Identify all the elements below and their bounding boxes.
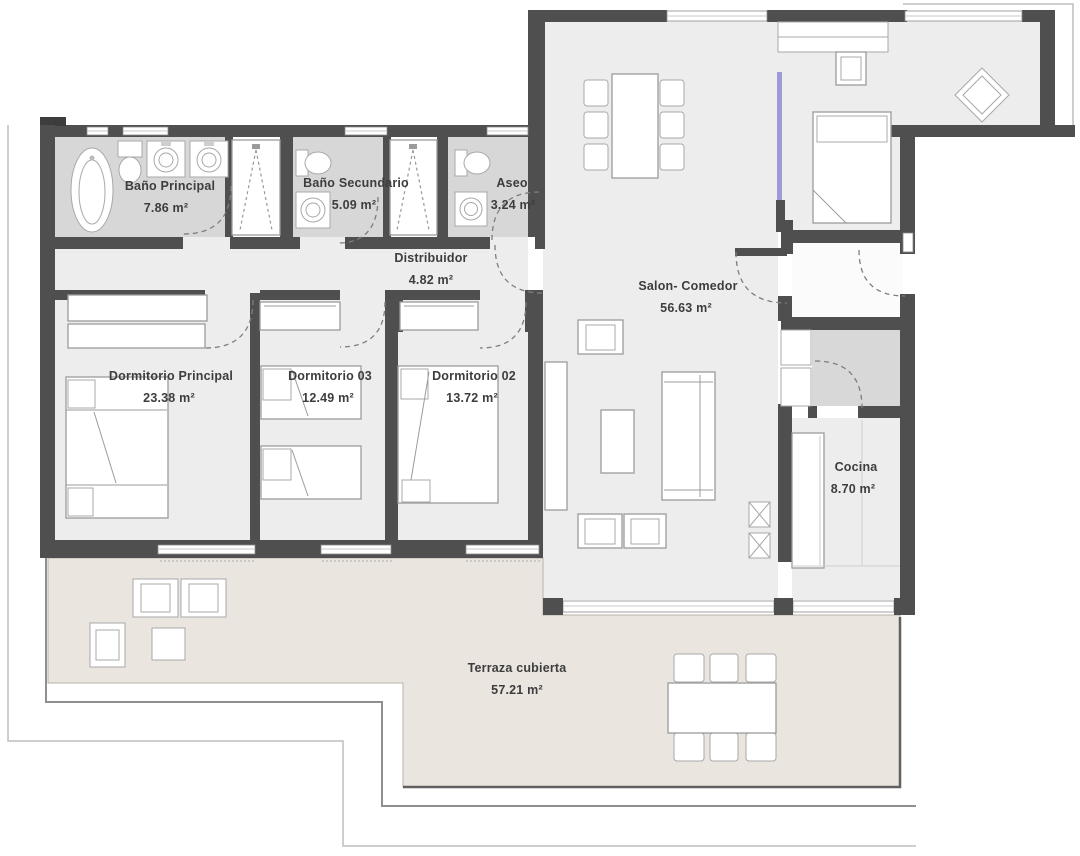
svg-text:3.24 m²: 3.24 m² [491, 198, 535, 212]
stool-2 [749, 533, 770, 558]
sofa [662, 372, 715, 500]
svg-text:Dormitorio 03: Dormitorio 03 [288, 369, 372, 383]
window-adjacent-top [905, 11, 1022, 21]
wall-salon-bottom-corner-mid [774, 598, 793, 615]
dining-chair [660, 144, 684, 170]
double-bed-dorm02 [398, 366, 498, 503]
sink-aseo [455, 192, 487, 226]
terrace-chair [674, 733, 704, 761]
wall-storage-bottom-stub [808, 406, 817, 418]
pillow [263, 449, 291, 480]
svg-text:12.49 m²: 12.49 m² [302, 391, 354, 405]
svg-text:7.86 m²: 7.86 m² [144, 201, 188, 215]
wall-right-adjacent-room [1040, 10, 1055, 131]
wall-top-bathrooms [40, 125, 545, 137]
storage-floor [812, 330, 903, 406]
terrace-side-chair [90, 623, 125, 667]
dining-chair [584, 112, 608, 138]
wall-salon-bottom-corner-left [543, 598, 563, 615]
wall-junction-dorm02 [525, 290, 543, 332]
svg-text:Baño Secundario: Baño Secundario [303, 176, 409, 190]
bathtub [71, 148, 113, 232]
terrace-armchair-1 [133, 579, 178, 617]
svg-text:56.63 m²: 56.63 m² [660, 301, 712, 315]
svg-text:4.82 m²: 4.82 m² [409, 273, 453, 287]
terrace-chair [746, 733, 776, 761]
storage-furniture [781, 330, 811, 406]
dresser-1 [68, 295, 207, 321]
wall-dorm02-top [398, 290, 480, 300]
svg-text:13.72 m²: 13.72 m² [446, 391, 498, 405]
dresser-2 [68, 324, 205, 348]
window-salon-top [667, 11, 767, 21]
svg-text:23.38 m²: 23.38 m² [143, 391, 195, 405]
wall-shower1-right [280, 137, 293, 237]
svg-text:Dormitorio 02: Dormitorio 02 [432, 369, 516, 383]
storage-shelf-1 [781, 330, 811, 365]
floor-plan-drawing: Baño Principal 7.86 m² Baño Secundario 5… [0, 0, 1080, 856]
wall-kitchen-bottom-corner [894, 598, 915, 615]
pillow [401, 369, 428, 399]
toilet-aseo [455, 150, 490, 176]
wall-bath-bottom-2 [230, 237, 300, 249]
wall-salon-storage-1 [778, 296, 792, 321]
storage-shelf-2 [781, 368, 811, 406]
wall-left [40, 125, 55, 558]
pillow [817, 116, 887, 142]
terrace-table [668, 683, 776, 733]
terrace-dining-set [668, 654, 776, 761]
dining-chair [584, 80, 608, 106]
wall-dorm03-top [260, 290, 340, 300]
terrace-chair [710, 654, 738, 682]
wall-salon-top-2 [767, 10, 907, 22]
stool-1 [749, 502, 770, 527]
wall-bath-bottom-3 [345, 237, 490, 249]
window-bottom-1 [158, 545, 255, 554]
wall-kitchen-top [858, 406, 903, 418]
armchair-top [578, 320, 623, 354]
dining-chair [584, 144, 608, 170]
window-top-4 [487, 127, 528, 135]
svg-text:Terraza cubierta: Terraza cubierta [468, 661, 568, 675]
sink-principal-1 [147, 141, 185, 177]
wall-salon-top-1 [543, 10, 667, 22]
svg-text:Distribuidor: Distribuidor [394, 251, 467, 265]
window-bottom-3 [466, 545, 539, 554]
wall-shower2-right [437, 137, 448, 237]
sink-principal-2 [190, 141, 228, 177]
wall-kitchen-right [900, 330, 915, 615]
wall-right-upper [900, 125, 915, 220]
toilet-principal [118, 141, 142, 183]
dining-chair [660, 80, 684, 106]
wall-dorm02-salon [528, 300, 543, 545]
sink-secundario [296, 192, 330, 228]
wall-bath-bottom-1 [55, 237, 183, 249]
wall-dormP-dorm03 [250, 293, 260, 545]
entry-corridor-floor [792, 243, 903, 330]
floor-plan-page: Baño Principal 7.86 m² Baño Secundario 5… [0, 0, 1080, 856]
terrace-chair [710, 733, 738, 761]
svg-text:Salon- Comedor: Salon- Comedor [638, 279, 737, 293]
window-entry-sidelight [903, 233, 913, 252]
wall-adjacent-divider [887, 125, 1075, 137]
wall-dorm03-dorm02 [385, 293, 398, 545]
wall-storage-top [781, 317, 903, 330]
dining-chair [660, 112, 684, 138]
pillow [68, 488, 93, 516]
window-bottom-2 [321, 545, 391, 554]
tv-sideboard [545, 362, 567, 510]
coffee-table [601, 410, 634, 473]
terrace-chair [746, 654, 776, 682]
shower-principal [232, 140, 280, 235]
glass-partition [777, 72, 782, 204]
pillow [263, 369, 291, 400]
nightstand [836, 52, 866, 85]
window-top-1 [87, 127, 108, 135]
terrace-chair [674, 654, 704, 682]
wall-salon-kitchen [778, 404, 792, 562]
window-kitchen-bottom [793, 601, 894, 612]
wall-corner-topleft [40, 117, 66, 126]
kitchen-counter [792, 433, 824, 568]
door-leaf-corridor-salon [735, 248, 787, 256]
single-bed-2 [261, 446, 361, 499]
svg-text:Cocina: Cocina [835, 460, 879, 474]
window-top-2 [123, 127, 168, 135]
svg-text:8.70 m²: 8.70 m² [831, 482, 875, 496]
armchair-bottom-1 [578, 514, 622, 548]
dining-table [612, 74, 658, 178]
svg-text:Baño Principal: Baño Principal [125, 179, 215, 193]
svg-text:Dormitorio Principal: Dormitorio Principal [109, 369, 233, 383]
toilet-secundario [296, 150, 331, 176]
window-salon-bottom [563, 601, 774, 612]
window-top-3 [345, 127, 387, 135]
wall-bath-bottom-4 [535, 237, 545, 249]
adjacent-bed [813, 112, 891, 223]
terrace-armchair-2 [181, 579, 226, 617]
svg-text:Aseo: Aseo [496, 176, 528, 190]
terrace-side-table [152, 628, 185, 660]
dining-table-set [584, 74, 684, 178]
armchair-bottom-2 [624, 514, 666, 548]
svg-text:5.09 m²: 5.09 m² [332, 198, 376, 212]
pillow [68, 380, 95, 408]
svg-text:57.21 m²: 57.21 m² [491, 683, 543, 697]
wall-corridor-top [785, 230, 903, 243]
